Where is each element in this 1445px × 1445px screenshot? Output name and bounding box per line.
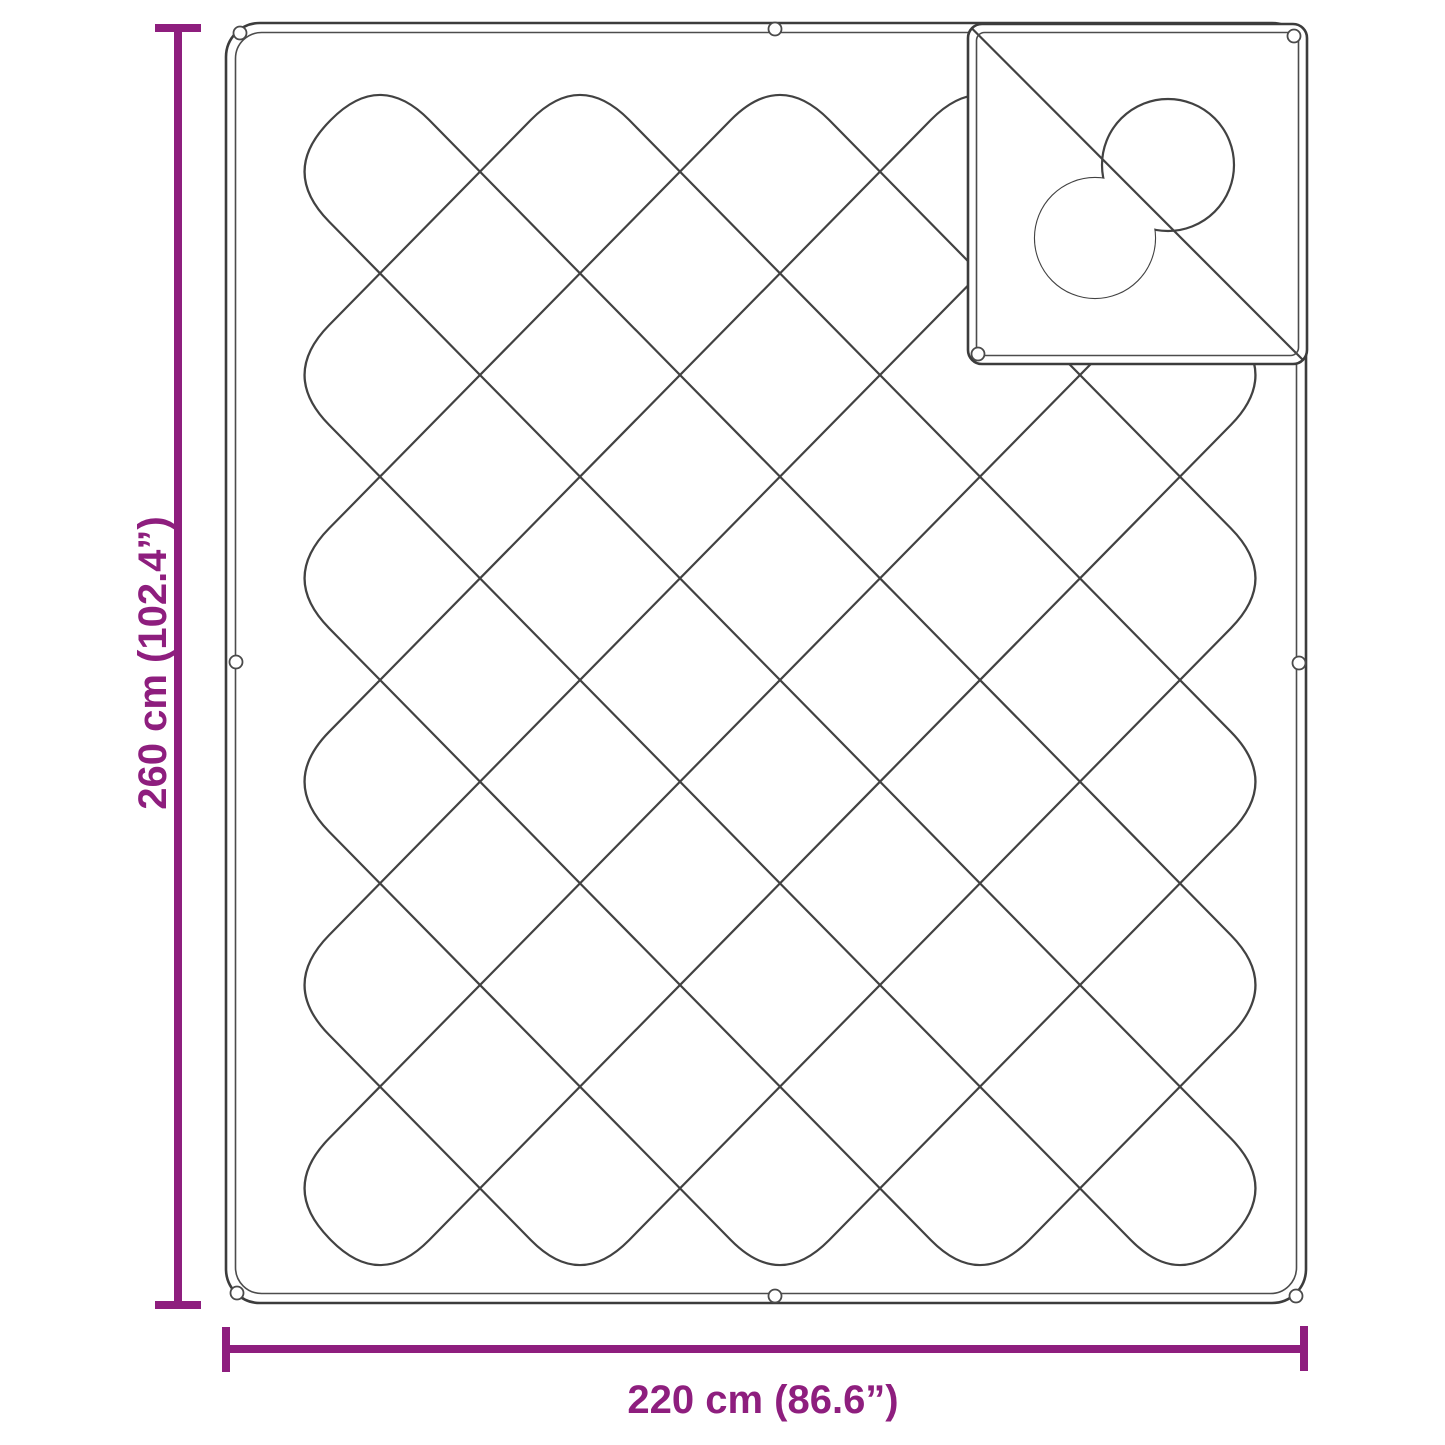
grommet-icon (1290, 1290, 1303, 1303)
product-dimension-diagram: 260 cm (102.4”) 220 cm (86.6”) (0, 0, 1445, 1445)
corner-fold-flap (968, 24, 1307, 364)
width-dimension-label: 220 cm (86.6”) (627, 1378, 898, 1422)
height-dimension-line (174, 26, 182, 1307)
width-dimension-line (222, 1345, 1308, 1353)
diagram-svg: 260 cm (102.4”) 220 cm (86.6”) (0, 0, 1445, 1445)
width-dimension-left-cap (222, 1327, 230, 1372)
grommet-icon (1288, 30, 1301, 43)
width-dimension: 220 cm (86.6”) (222, 1326, 1308, 1422)
grommet-icon (769, 1290, 782, 1303)
height-dimension-bottom-cap (155, 1301, 201, 1309)
width-dimension-right-cap (1300, 1326, 1308, 1371)
grommet-icon (230, 656, 243, 669)
height-dimension-label: 260 cm (102.4”) (131, 516, 175, 810)
grommet-icon (972, 348, 985, 361)
height-dimension-top-cap (155, 24, 201, 32)
grommet-icon (1293, 657, 1306, 670)
grommet-icon (231, 1287, 244, 1300)
grommet-icon (769, 23, 782, 36)
grommet-icon (234, 27, 247, 40)
height-dimension: 260 cm (102.4”) (131, 24, 201, 1309)
